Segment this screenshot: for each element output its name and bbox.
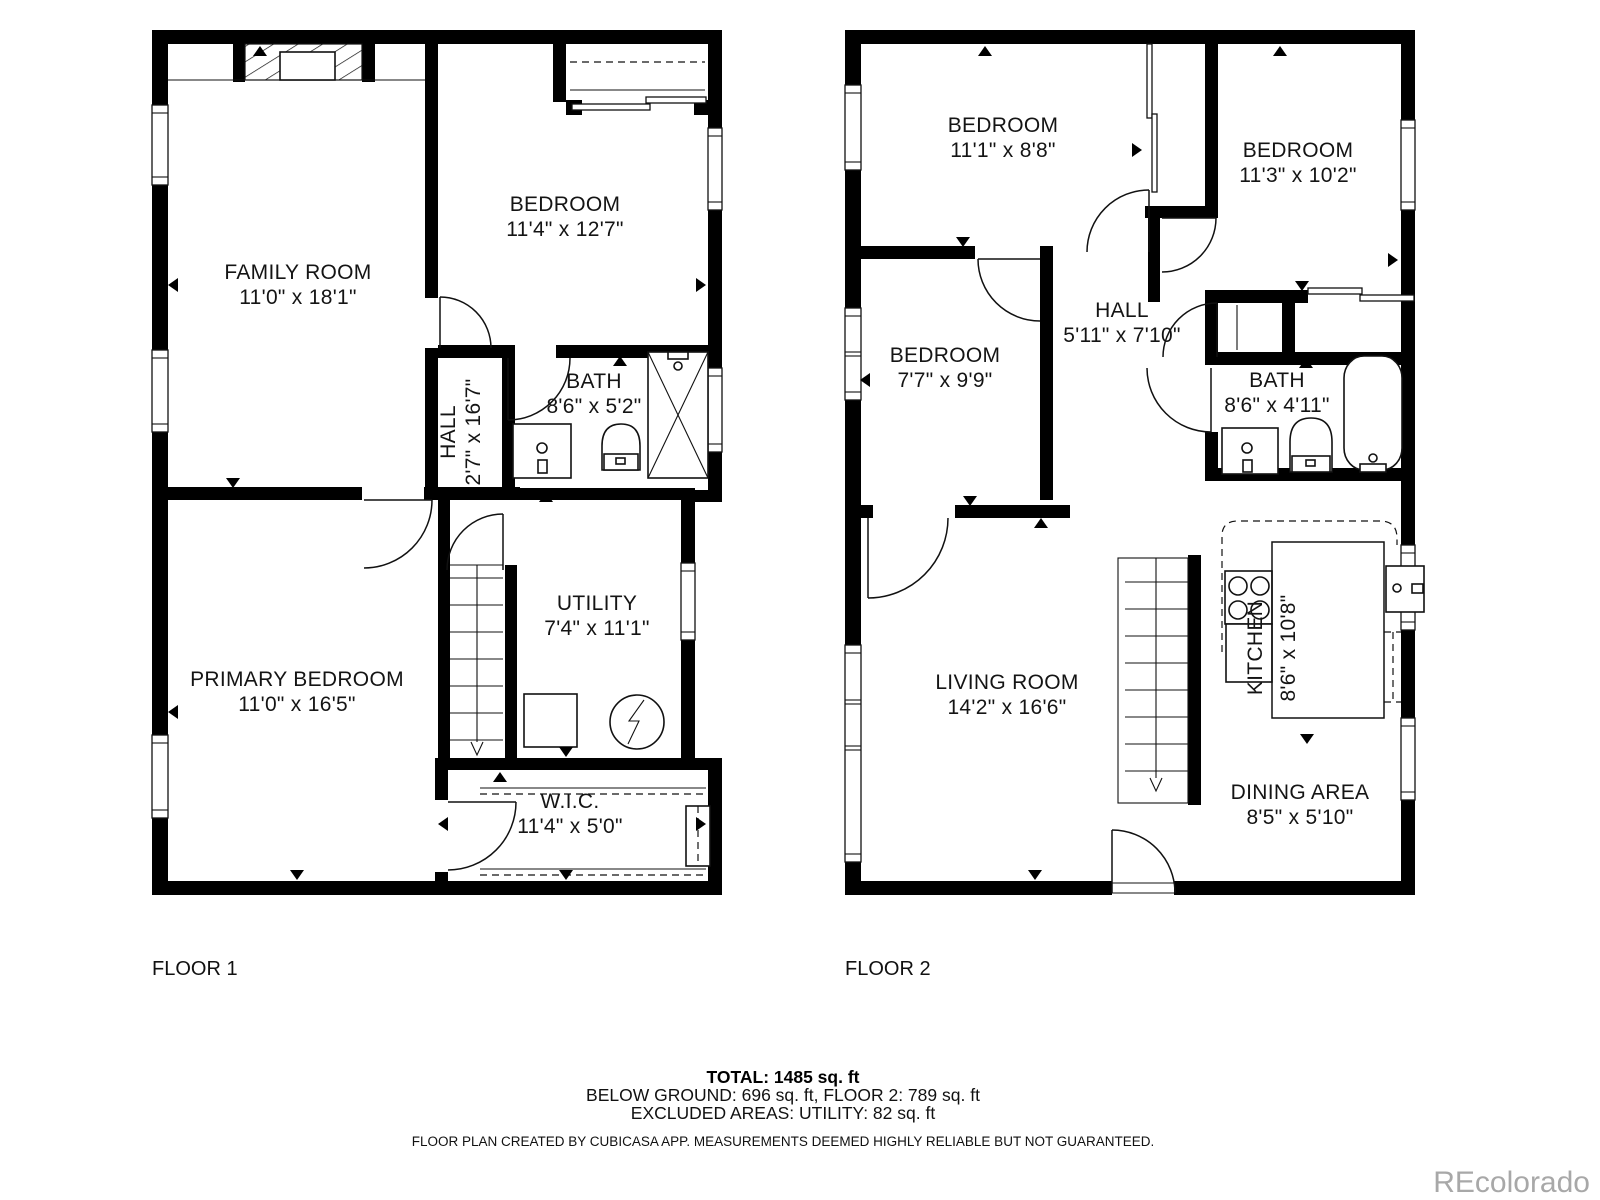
kitchen-dims: 8'6" x 10'8" bbox=[1277, 594, 1300, 701]
floor2-stairs bbox=[1118, 558, 1188, 803]
dining-area-label: DINING AREA bbox=[1231, 781, 1370, 804]
door-bath2 bbox=[1147, 368, 1211, 432]
shower-fixture bbox=[648, 352, 708, 478]
furnace-fixture bbox=[610, 695, 664, 749]
window bbox=[845, 308, 861, 400]
door-bedroom2 bbox=[1162, 218, 1216, 272]
wic-label: W.I.C. bbox=[541, 790, 600, 813]
hall-label: HALL bbox=[437, 405, 460, 459]
floor2-caption: FLOOR 2 bbox=[845, 958, 931, 980]
window bbox=[708, 128, 722, 210]
utility-label: UTILITY bbox=[557, 592, 637, 615]
bedroom2-dims: 11'3" x 10'2" bbox=[1239, 164, 1357, 187]
sliding-door bbox=[1308, 288, 1362, 294]
window bbox=[681, 563, 695, 640]
door-bedroom3 bbox=[978, 259, 1040, 321]
sink-fixture bbox=[513, 424, 571, 478]
total-area-text: TOTAL: 1485 sq. ft bbox=[707, 1067, 860, 1087]
sliding-door bbox=[1360, 295, 1414, 301]
summary-block: TOTAL: 1485 sq. ft BELOW GROUND: 696 sq.… bbox=[412, 1067, 1154, 1149]
bath-label: BATH bbox=[566, 370, 622, 393]
family-room-dims: 11'0" x 18'1" bbox=[239, 286, 357, 309]
floor1-plan: FAMILY ROOM 11'0" x 18'1" BEDROOM 11'4" … bbox=[152, 30, 722, 895]
door-wic bbox=[448, 802, 516, 870]
door-primary-bedroom bbox=[364, 500, 432, 568]
window bbox=[845, 645, 861, 862]
floor1-stairs bbox=[450, 565, 503, 755]
hall-dims: 2'7" x 16'7" bbox=[462, 378, 485, 485]
water-heater-fixture bbox=[524, 694, 577, 747]
hall2-dims: 5'11" x 7'10" bbox=[1063, 324, 1181, 347]
window bbox=[152, 105, 168, 185]
wic-dresser bbox=[686, 806, 710, 866]
door-living bbox=[868, 518, 948, 598]
primary-bedroom-label: PRIMARY BEDROOM bbox=[190, 668, 404, 691]
floor2-closets bbox=[1147, 44, 1414, 350]
floor1-caption: FLOOR 1 bbox=[152, 958, 238, 980]
kitchen-label: KITCHEN bbox=[1244, 601, 1267, 695]
bedroom-label: BEDROOM bbox=[510, 193, 621, 216]
sliding-door bbox=[1147, 44, 1152, 118]
recolorado-watermark: REcolorado bbox=[1433, 1166, 1590, 1199]
bath-dims: 8'6" x 5'2" bbox=[546, 395, 641, 418]
window bbox=[152, 735, 168, 818]
bedroom1-label: BEDROOM bbox=[948, 114, 1059, 137]
window bbox=[152, 350, 168, 432]
window bbox=[708, 368, 722, 452]
door-hall bbox=[447, 514, 503, 570]
bathtub-fixture bbox=[1344, 356, 1402, 472]
primary-bedroom-dims: 11'0" x 16'5" bbox=[238, 693, 356, 716]
family-room-label: FAMILY ROOM bbox=[224, 261, 371, 284]
door-bedroom1 bbox=[1087, 190, 1149, 252]
toilet-fixture bbox=[1290, 418, 1332, 472]
area-breakdown-text: BELOW GROUND: 696 sq. ft, FLOOR 2: 789 s… bbox=[586, 1085, 980, 1105]
living-room-label: LIVING ROOM bbox=[935, 671, 1078, 694]
bedroom3-label: BEDROOM bbox=[890, 344, 1001, 367]
window bbox=[1401, 718, 1415, 800]
bedroom3-dims: 7'7" x 9'9" bbox=[897, 369, 992, 392]
stairs-down-arrow bbox=[1150, 778, 1162, 791]
dining-area-dims: 8'5" x 5'10" bbox=[1246, 806, 1353, 829]
bath2-dims: 8'6" x 4'11" bbox=[1224, 394, 1330, 417]
floor1-labels: FAMILY ROOM 11'0" x 18'1" BEDROOM 11'4" … bbox=[190, 193, 650, 838]
disclaimer-text: FLOOR PLAN CREATED BY CUBICASA APP. MEAS… bbox=[412, 1134, 1154, 1149]
floor2-plan: BEDROOM 11'1" x 8'8" BEDROOM 11'3" x 10'… bbox=[845, 30, 1424, 895]
wic-dims: 11'4" x 5'0" bbox=[517, 815, 623, 838]
bedroom2-label: BEDROOM bbox=[1243, 139, 1354, 162]
bedroom-dims: 11'4" x 12'7" bbox=[506, 218, 624, 241]
sliding-door bbox=[1152, 114, 1157, 192]
bedroom-closet bbox=[570, 62, 706, 110]
utility-dims: 7'4" x 11'1" bbox=[544, 617, 650, 640]
stairs-down-arrow bbox=[471, 742, 483, 755]
sink-fixture bbox=[1222, 428, 1278, 474]
living-room-dims: 14'2" x 16'6" bbox=[947, 696, 1066, 719]
door-bedroom bbox=[440, 297, 491, 348]
bedroom1-dims: 11'1" x 8'8" bbox=[950, 139, 1056, 162]
kitchen-sink-fixture bbox=[1386, 566, 1424, 612]
hall2-label: HALL bbox=[1095, 299, 1149, 322]
chimney-hatch bbox=[168, 44, 425, 80]
bath2-label: BATH bbox=[1249, 369, 1305, 392]
entry-door bbox=[1112, 830, 1175, 893]
toilet-fixture bbox=[602, 424, 640, 470]
window bbox=[845, 85, 861, 170]
floorplan-canvas: FAMILY ROOM 11'0" x 18'1" BEDROOM 11'4" … bbox=[0, 0, 1600, 1200]
excluded-areas-text: EXCLUDED AREAS: UTILITY: 82 sq. ft bbox=[631, 1103, 936, 1123]
utility-fixtures bbox=[524, 694, 664, 749]
window bbox=[1401, 120, 1415, 210]
